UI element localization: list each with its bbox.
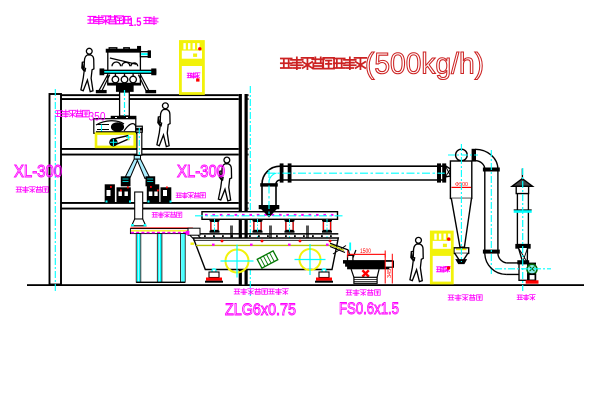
svg-text:1.5: 1.5 (129, 15, 142, 29)
svg-text:XL-300: XL-300 (177, 161, 225, 181)
svg-text:FS0.6x1.5: FS0.6x1.5 (339, 299, 399, 318)
svg-text:1500: 1500 (360, 249, 372, 255)
svg-text:XL-300: XL-300 (14, 161, 62, 181)
svg-text:345: 345 (387, 269, 393, 278)
svg-text:350: 350 (89, 112, 106, 124)
svg-text:(500kg/h): (500kg/h) (365, 48, 484, 81)
svg-text:ZLG6x0.75: ZLG6x0.75 (225, 300, 296, 319)
